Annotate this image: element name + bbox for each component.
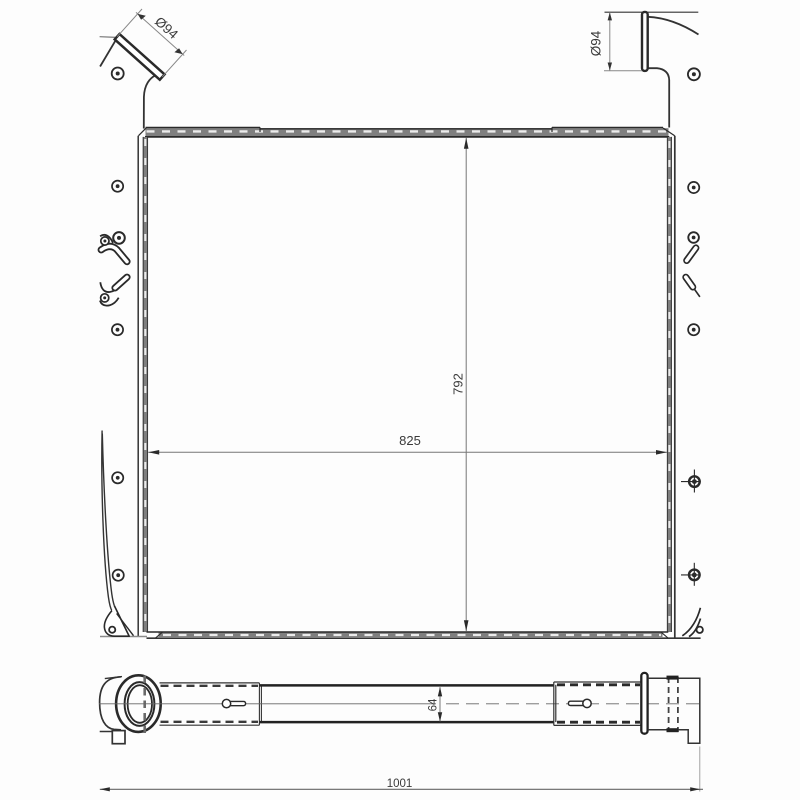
svg-text:792: 792 [451, 373, 466, 395]
svg-text:64: 64 [428, 698, 440, 711]
svg-text:1001: 1001 [387, 778, 413, 790]
svg-text:825: 825 [399, 433, 421, 448]
svg-text:Ø94: Ø94 [589, 30, 604, 56]
